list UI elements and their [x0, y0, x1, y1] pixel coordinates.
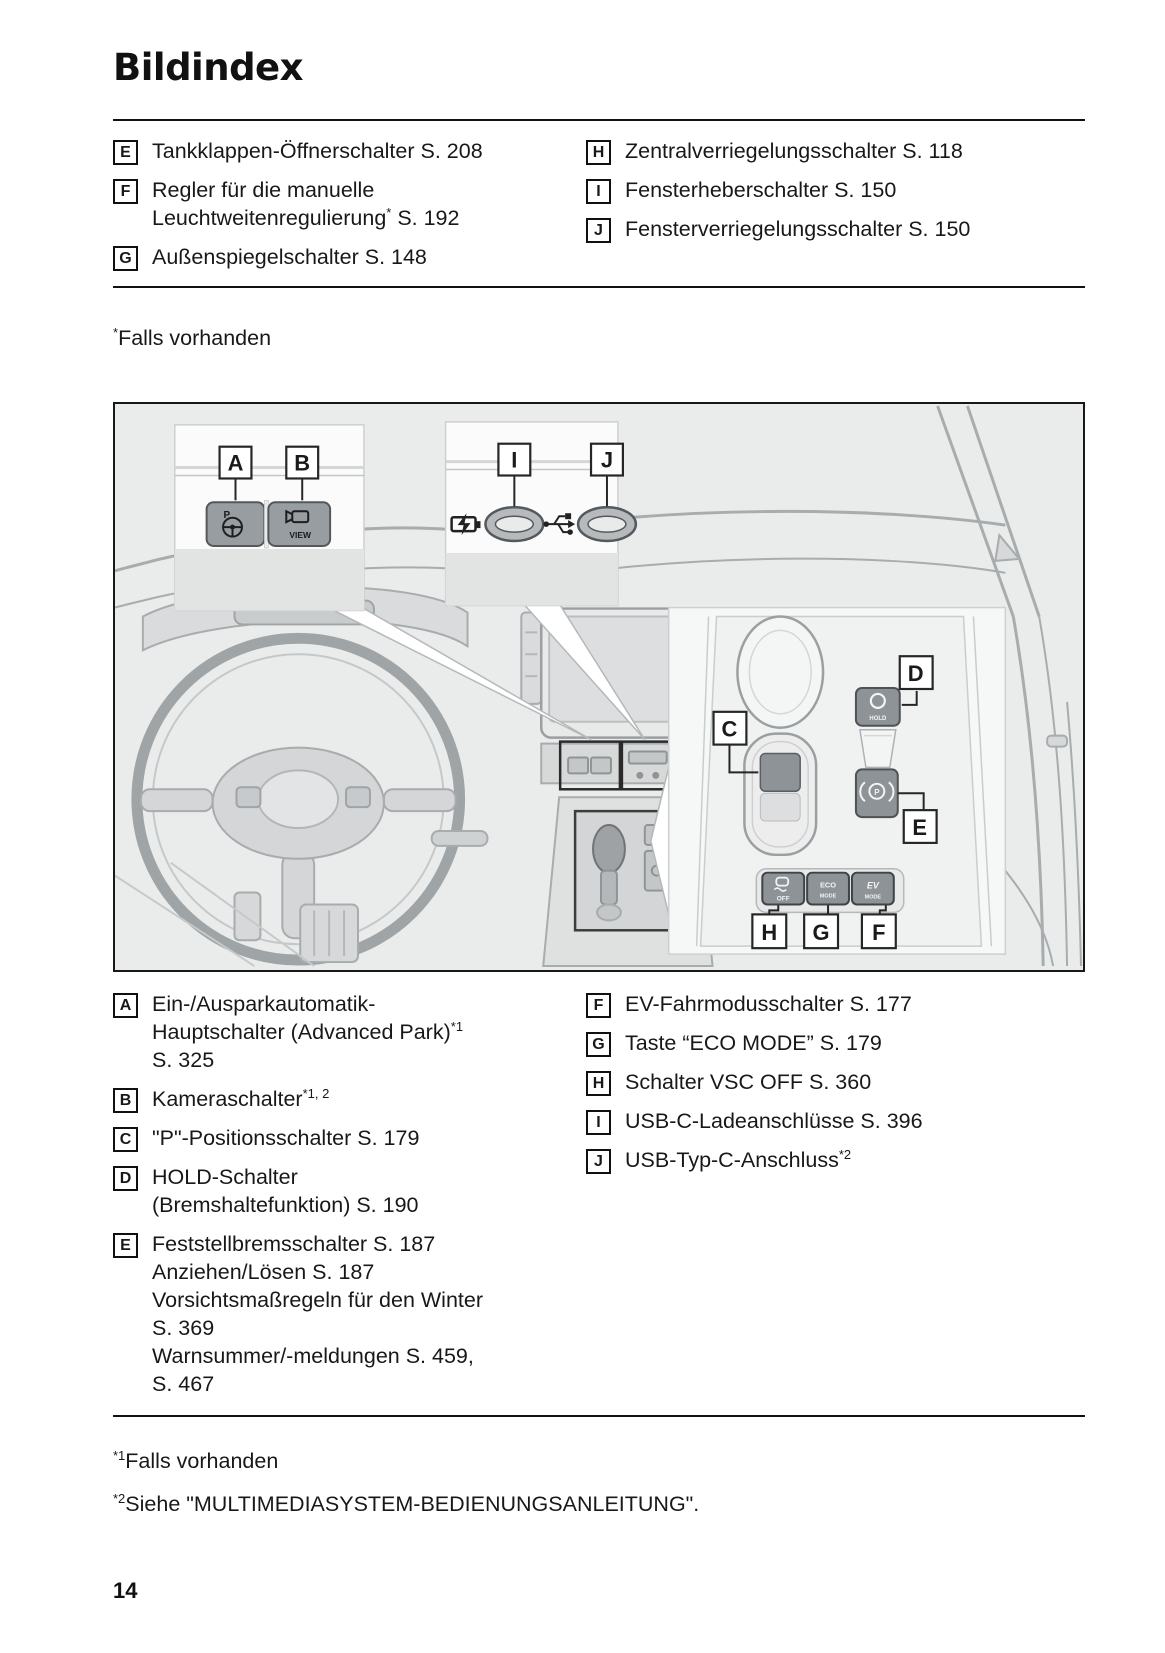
interior-diagram: P VIEW	[113, 402, 1085, 972]
callout-a: A	[220, 447, 252, 479]
item-marker-e: E	[113, 1233, 138, 1258]
camera-view-button: VIEW	[268, 502, 330, 546]
item-text: Feststellbremsschalter S. 187Anziehen/Lö…	[152, 1230, 586, 1398]
ev-mode-button: EV MODE	[852, 873, 894, 905]
item-marker-j: J	[586, 218, 611, 243]
index-item: ETankklappen-Öffnerschalter S. 208	[113, 137, 586, 165]
item-text: Regler für die manuelleLeuchtweitenregul…	[152, 176, 586, 232]
item-text: Ein-/Ausparkautomatik-Hauptschalter (Adv…	[152, 990, 586, 1074]
index-top-left-column: ETankklappen-Öffnerschalter S. 208FRegle…	[113, 137, 586, 282]
parking-brake-button: P	[856, 769, 898, 817]
view-label: VIEW	[289, 530, 311, 540]
index-item: IUSB-C-Ladeanschlüsse S. 396	[586, 1107, 1085, 1135]
item-text: Fensterheberschalter S. 150	[625, 176, 1085, 204]
inset-panel-ab: P VIEW	[175, 425, 364, 611]
page-number: 14	[113, 1578, 137, 1604]
manual-page: Bildindex ETankklappen-Öffnerschalter S.…	[0, 0, 1165, 1518]
item-marker-f: F	[113, 179, 138, 204]
svg-text:J: J	[601, 448, 613, 473]
item-text: Taste “ECO MODE” S. 179	[625, 1029, 1085, 1057]
index-item: BKameraschalter*1, 2	[113, 1085, 586, 1113]
svg-text:E: E	[912, 815, 927, 840]
svg-text:H: H	[761, 920, 777, 945]
item-marker-i: I	[586, 1110, 611, 1135]
callout-j: J	[591, 444, 623, 476]
hold-label: HOLD	[869, 716, 887, 722]
item-text: "P"-Positionsschalter S. 179	[152, 1124, 586, 1152]
svg-text:G: G	[813, 920, 830, 945]
footnote: *2Siehe "MULTIMEDIASYSTEM-BEDIENUNGSANLE…	[113, 1490, 1085, 1518]
svg-text:B: B	[294, 451, 310, 476]
callout-e: E	[904, 810, 937, 843]
index-item: FEV-Fahrmodusschalter S. 177	[586, 990, 1085, 1018]
ev-label: EV	[867, 881, 880, 891]
item-text: Außenspiegelschalter S. 148	[152, 243, 586, 271]
item-marker-d: D	[113, 1166, 138, 1191]
index-item: HZentralverriegelungsschalter S. 118	[586, 137, 1085, 165]
item-marker-h: H	[586, 140, 611, 165]
vsc-off-button: OFF	[762, 873, 804, 905]
index-item: C"P"-Positionsschalter S. 179	[113, 1124, 586, 1152]
item-marker-a: A	[113, 993, 138, 1018]
brake-p-label: P	[874, 788, 880, 797]
ev-mode-label: MODE	[865, 895, 882, 901]
callout-h: H	[752, 914, 786, 948]
index-item: JFensterverriegelungsschalter S. 150	[586, 215, 1085, 243]
item-marker-j: J	[586, 1149, 611, 1174]
item-text: Zentralverriegelungsschalter S. 118	[625, 137, 1085, 165]
item-text: Tankklappen-Öffnerschalter S. 208	[152, 137, 586, 165]
item-marker-h: H	[586, 1071, 611, 1096]
item-marker-c: C	[113, 1127, 138, 1152]
svg-text:C: C	[722, 717, 738, 742]
vsc-off-label: OFF	[777, 895, 790, 902]
svg-text:D: D	[908, 661, 924, 686]
eco-label: ECO	[820, 881, 836, 890]
svg-text:F: F	[872, 920, 885, 945]
index-bottom-left-column: AEin-/Ausparkautomatik-Hauptschalter (Ad…	[113, 990, 586, 1409]
index-item: EFeststellbremsschalter S. 187Anziehen/L…	[113, 1230, 586, 1398]
eco-mode-button: ECO MODE	[807, 873, 849, 905]
index-item: GAußenspiegelschalter S. 148	[113, 243, 586, 271]
item-marker-i: I	[586, 179, 611, 204]
eco-mode-label: MODE	[820, 894, 837, 900]
index-item: IFensterheberschalter S. 150	[586, 176, 1085, 204]
item-text: USB-Typ-C-Anschluss*2	[625, 1146, 1085, 1174]
page-title: Bildindex	[113, 46, 1085, 89]
callout-i: I	[498, 444, 530, 476]
p-position-button	[760, 754, 800, 792]
advanced-park-button: P	[207, 502, 265, 546]
item-marker-f: F	[586, 993, 611, 1018]
item-marker-g: G	[113, 246, 138, 271]
index-top-right-column: HZentralverriegelungsschalter S. 118IFen…	[586, 137, 1085, 282]
inset-panel-console: HOLD P	[669, 608, 1006, 955]
callout-g: G	[804, 914, 838, 948]
callout-d: D	[900, 656, 933, 689]
item-marker-g: G	[586, 1032, 611, 1057]
index-list-bottom: AEin-/Ausparkautomatik-Hauptschalter (Ad…	[113, 990, 1085, 1417]
usb-charge-port	[485, 507, 543, 541]
index-item: JUSB-Typ-C-Anschluss*2	[586, 1146, 1085, 1174]
footnote: *1Falls vorhanden	[113, 1447, 1085, 1475]
callout-c: C	[714, 712, 747, 745]
callout-b: B	[286, 447, 318, 479]
index-item: DHOLD-Schalter(Bremshaltefunktion) S. 19…	[113, 1163, 586, 1219]
availability-note: *Falls vorhanden	[113, 324, 1085, 352]
item-marker-b: B	[113, 1088, 138, 1113]
svg-text:A: A	[228, 451, 244, 476]
index-bottom-right-column: FEV-Fahrmodusschalter S. 177GTaste “ECO …	[586, 990, 1085, 1409]
item-text: Schalter VSC OFF S. 360	[625, 1068, 1085, 1096]
index-item: HSchalter VSC OFF S. 360	[586, 1068, 1085, 1096]
interior-diagram-svg: P VIEW	[115, 404, 1083, 970]
callout-f: F	[862, 914, 896, 948]
item-marker-e: E	[113, 140, 138, 165]
footnotes: *1Falls vorhanden*2Siehe "MULTIMEDIASYST…	[113, 1447, 1085, 1518]
index-item: AEin-/Ausparkautomatik-Hauptschalter (Ad…	[113, 990, 586, 1074]
item-text: HOLD-Schalter(Bremshaltefunktion) S. 190	[152, 1163, 586, 1219]
index-item: GTaste “ECO MODE” S. 179	[586, 1029, 1085, 1057]
index-item: FRegler für die manuelleLeuchtweitenregu…	[113, 176, 586, 232]
item-text: USB-C-Ladeanschlüsse S. 396	[625, 1107, 1085, 1135]
usb-data-port	[578, 507, 636, 541]
item-text: Fensterverriegelungsschalter S. 150	[625, 215, 1085, 243]
index-list-top: ETankklappen-Öffnerschalter S. 208FRegle…	[113, 119, 1085, 288]
svg-text:I: I	[511, 448, 517, 473]
item-text: Kameraschalter*1, 2	[152, 1085, 586, 1113]
item-text: EV-Fahrmodusschalter S. 177	[625, 990, 1085, 1018]
hold-button: HOLD	[856, 688, 900, 726]
